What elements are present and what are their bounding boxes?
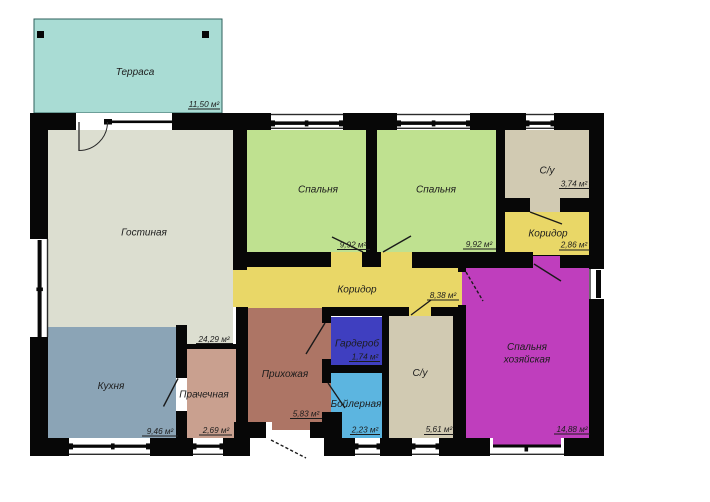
- svg-text:Гардероб: Гардероб: [335, 338, 379, 350]
- svg-text:Коридор: Коридор: [337, 285, 377, 296]
- svg-text:Спальня: Спальня: [507, 342, 548, 353]
- svg-text:С/у: С/у: [540, 166, 556, 177]
- svg-text:11,50 м²: 11,50 м²: [189, 100, 220, 109]
- svg-text:Прачечная: Прачечная: [179, 390, 229, 401]
- svg-text:14,88 м²: 14,88 м²: [556, 425, 587, 434]
- svg-text:3,74 м²: 3,74 м²: [561, 180, 588, 189]
- svg-text:8,38 м²: 8,38 м²: [430, 291, 457, 300]
- svg-text:2,86 м²: 2,86 м²: [560, 241, 588, 250]
- svg-text:хозяйская: хозяйская: [503, 355, 551, 366]
- svg-text:5,61 м²: 5,61 м²: [426, 425, 453, 434]
- svg-text:Гостиная: Гостиная: [121, 228, 167, 239]
- svg-text:Бойлерная: Бойлерная: [331, 399, 382, 410]
- svg-text:Терраса: Терраса: [116, 67, 155, 78]
- svg-text:Прихожая: Прихожая: [262, 369, 309, 380]
- svg-text:Коридор: Коридор: [528, 229, 568, 240]
- svg-text:Кухня: Кухня: [98, 381, 125, 392]
- svg-text:9,92 м²: 9,92 м²: [466, 240, 493, 249]
- svg-text:2,69 м²: 2,69 м²: [202, 426, 230, 435]
- svg-text:Спальня: Спальня: [416, 185, 457, 196]
- svg-text:5,83 м²: 5,83 м²: [293, 410, 320, 419]
- svg-text:9,92 м²: 9,92 м²: [340, 241, 367, 250]
- svg-text:24,29 м²: 24,29 м²: [197, 335, 229, 344]
- svg-text:2,23 м²: 2,23 м²: [351, 426, 379, 435]
- svg-text:Спальня: Спальня: [298, 185, 339, 196]
- svg-text:9,46 м²: 9,46 м²: [147, 427, 174, 436]
- svg-text:С/у: С/у: [413, 368, 429, 379]
- svg-text:1,74 м²: 1,74 м²: [352, 353, 379, 362]
